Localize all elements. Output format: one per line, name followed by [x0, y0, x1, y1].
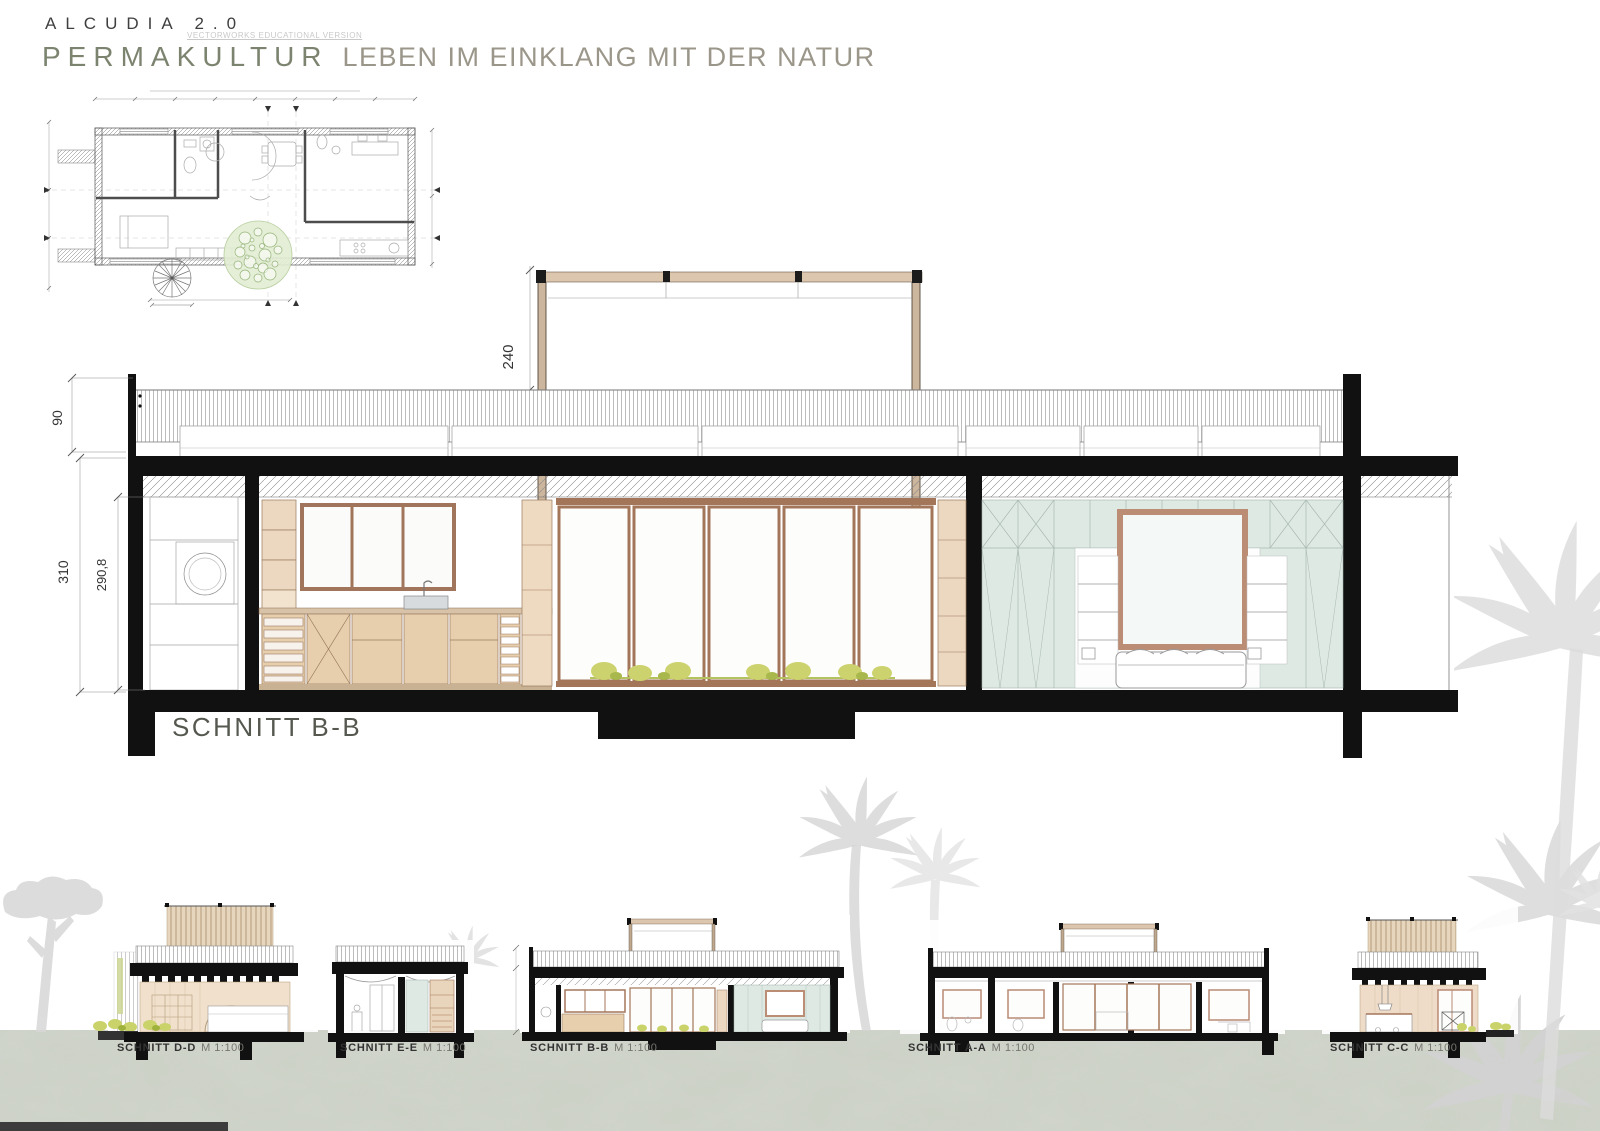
bbs-counter: [562, 1014, 624, 1032]
bbs-roof: [529, 967, 844, 978]
sink: [404, 596, 448, 609]
schnitt-bb-small-drawing: [513, 915, 850, 1050]
roof-slab: [128, 456, 1458, 476]
bbs-floor: [522, 1032, 847, 1041]
bedroom-window-frame: [1120, 512, 1245, 647]
label-schnitt-aa: SCHNITT A-AM 1:100: [908, 1042, 1035, 1054]
label-schnitt-ee: SCHNITT E-EM 1:100: [340, 1042, 466, 1054]
wall-utility: [245, 458, 259, 690]
main-section-drawing: 240: [49, 266, 1458, 758]
architecture-sheet: 240: [0, 0, 1600, 1131]
glass-doors: [556, 498, 936, 687]
watermark: VECTORWORKS EDUCATIONAL VERSION: [187, 31, 362, 40]
ee-railing: [336, 946, 464, 962]
main-section-label: SCHNITT B-B: [172, 712, 362, 743]
aas-roof: [928, 967, 1269, 978]
title-main: PERMAKULTUR: [42, 41, 329, 72]
roof-planters: [180, 426, 1320, 458]
aas-floor: [920, 1033, 1278, 1041]
label-schnitt-cc: SCHNITT C-CM 1:100: [1330, 1042, 1457, 1054]
tall-cabinet: [522, 500, 552, 686]
svg-text:290,8: 290,8: [94, 559, 109, 592]
dd-floor: [124, 1032, 304, 1042]
ccs-railing: [1358, 952, 1478, 968]
ee-floor: [328, 1033, 474, 1042]
dd-counter: [208, 1006, 288, 1032]
svg-text:90: 90: [49, 410, 65, 426]
dd-pergola-slats: [167, 906, 273, 948]
svg-text:240: 240: [500, 344, 517, 369]
label-schnitt-dd: SCHNITT D-DM 1:100: [117, 1042, 244, 1054]
ccs-island: [1366, 1014, 1412, 1032]
floor-plan: [44, 91, 440, 307]
plan-balcony-bottom: [58, 249, 95, 262]
ccs-pergola-slats: [1368, 920, 1456, 953]
schnitt-dd-drawing: [93, 900, 318, 1060]
ccs-window: [1438, 990, 1472, 1032]
label-schnitt-bb: SCHNITT B-BM 1:100: [530, 1042, 657, 1054]
schnitt-ee-drawing: [328, 940, 474, 1058]
schnitt-cc-drawing: [1322, 902, 1518, 1058]
presentation-board: 240: [0, 0, 1600, 1131]
dd-railing: [136, 946, 293, 963]
plan-balcony-top: [58, 150, 95, 163]
bbs-railing: [533, 951, 839, 967]
plan-partitions: [96, 130, 414, 222]
parapet-left: [128, 374, 136, 458]
bed: [1116, 650, 1246, 689]
svg-text:310: 310: [55, 560, 71, 584]
schnitt-aa-drawing: [900, 920, 1285, 1055]
title-sub: LEBEN IM EINKLANG MIT DER NATUR: [343, 42, 876, 72]
aas-railing: [932, 952, 1268, 967]
pergola-beam: [537, 272, 922, 282]
wall-left: [128, 458, 143, 690]
dd-roof: [130, 963, 298, 976]
plan-tree-circle: [224, 221, 292, 289]
tree-silhouette-left: [3, 876, 103, 1032]
ccs-floor: [1330, 1032, 1486, 1042]
kitchen-window: [302, 505, 454, 589]
ceiling-hatch: [143, 476, 1452, 497]
base-cabinets: [259, 614, 552, 690]
ee-roof: [332, 962, 468, 974]
page-title: PERMAKULTURLEBEN IM EINKLANG MIT DER NAT…: [42, 41, 876, 73]
wall-bedroom: [966, 458, 982, 690]
ccs-roof: [1352, 968, 1486, 980]
bedroom: [982, 500, 1343, 688]
ground-dark-strip: [0, 1122, 228, 1131]
shelf-column: [938, 500, 966, 686]
wall-right: [1343, 374, 1361, 712]
bbs-window: [565, 990, 625, 1012]
